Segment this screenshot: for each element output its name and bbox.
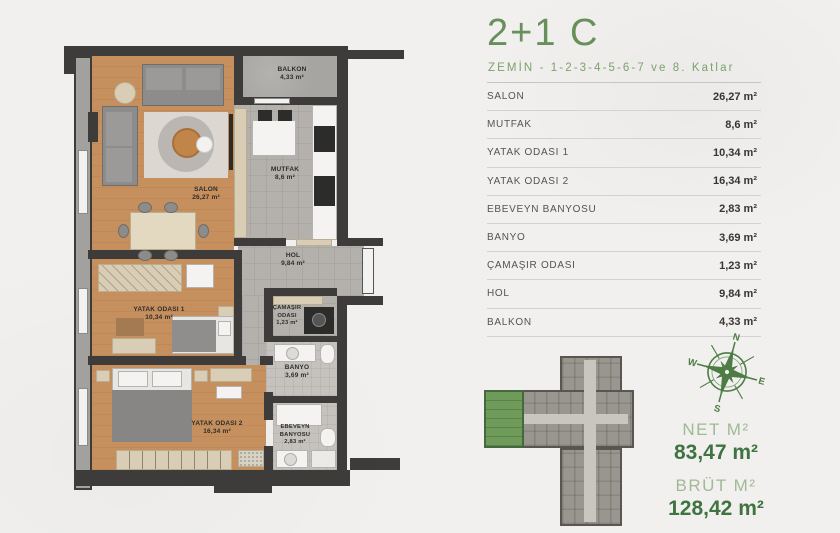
washing-machine-door xyxy=(312,313,326,327)
wall-right-upper xyxy=(337,48,348,246)
key-plan-corridor-v xyxy=(584,360,596,522)
window-yatak2 xyxy=(78,388,88,446)
compass-west-label: W xyxy=(686,357,698,370)
banyo-sink xyxy=(286,347,299,360)
label-mutfak: MUTFAK8,6 m² xyxy=(258,166,312,183)
wardrobe-yatak1 xyxy=(98,264,182,292)
wall-right-lower xyxy=(337,305,347,470)
wall-bottom xyxy=(74,470,350,486)
wall-kitchen-bottom xyxy=(234,238,286,246)
label-yatak2: YATAK ODASI 216,34 m² xyxy=(182,420,252,437)
sofa-main-cushion xyxy=(146,68,182,90)
sofa-left-cushion xyxy=(106,148,132,182)
ebeveyn-toilet xyxy=(320,428,336,447)
dining-chair xyxy=(198,224,209,238)
doormat-yatak2 xyxy=(238,450,264,467)
double-bed-pillow xyxy=(118,371,148,387)
area-table: SALON26,27 m² MUTFAK8,6 m² YATAK ODASI 1… xyxy=(487,82,761,337)
compass-icon: N E S W xyxy=(681,326,773,418)
stove xyxy=(314,126,335,152)
kitchen-counter-left xyxy=(234,108,247,238)
label-salon: SALON26,27 m² xyxy=(176,186,236,203)
table-row: YATAK ODASI 216,34 m² xyxy=(487,168,761,196)
dining-table xyxy=(130,212,196,250)
wall-left-stub xyxy=(88,112,98,142)
building-key-plan xyxy=(478,352,638,528)
ebeveyn-tub xyxy=(276,404,322,426)
wall-balkon-left xyxy=(234,48,243,105)
kitchen-doormat xyxy=(296,239,332,246)
side-table xyxy=(114,82,136,104)
kitchen-island xyxy=(252,120,296,156)
table-row: EBEVEYN BANYOSU2,83 m² xyxy=(487,196,761,224)
wall-camasir-top xyxy=(264,288,337,296)
wall-yatak2-door-jamb xyxy=(260,356,273,365)
wall-bottom-step xyxy=(214,486,272,493)
table-row: MUTFAK8,6 m² xyxy=(487,111,761,139)
label-hol: HOL9,84 m² xyxy=(270,252,316,269)
nightstand-yatak2 xyxy=(194,370,208,382)
wardrobe-yatak2 xyxy=(116,450,232,470)
table-row: YATAK ODASI 110,34 m² xyxy=(487,139,761,167)
table-row: HOL9,84 m² xyxy=(487,280,761,308)
nightstand-yatak2 xyxy=(96,370,110,382)
ebeveyn-shower xyxy=(311,450,336,468)
wall-entrance-top xyxy=(337,238,383,246)
dining-chair xyxy=(138,202,152,213)
brut-label: BRÜT M² xyxy=(632,476,800,496)
floor-plan: SALON26,27 m² MUTFAK8,6 m² BALKON4,33 m²… xyxy=(0,0,470,533)
banyo-toilet xyxy=(320,344,335,364)
brochure-page: SALON26,27 m² MUTFAK8,6 m² BALKON4,33 m²… xyxy=(0,0,840,533)
door-entrance xyxy=(362,248,374,294)
table-row: SALON26,27 m² xyxy=(487,83,761,111)
ebeveyn-sink xyxy=(284,453,297,466)
dresser-yatak2 xyxy=(210,368,252,382)
window-salon xyxy=(78,150,88,214)
desk-yatak2 xyxy=(216,386,242,399)
kitchen-stool xyxy=(278,110,292,121)
tv-unit xyxy=(229,114,233,170)
brut-value: 128,42 m² xyxy=(632,497,800,521)
side-tray xyxy=(196,136,213,153)
key-plan-highlighted-unit xyxy=(484,390,524,448)
single-bed-pillow xyxy=(218,321,231,336)
kitchen-stool xyxy=(258,110,272,121)
sofa-main-cushion xyxy=(186,68,220,90)
wall-top xyxy=(84,46,348,56)
wall-entrance-bottom xyxy=(337,296,383,305)
label-camasir: ÇAMAŞIR ODASI1,23 m² xyxy=(270,305,304,328)
net-value: 83,47 m² xyxy=(632,441,800,465)
double-bed-blanket xyxy=(112,390,192,442)
dining-chair xyxy=(164,202,178,213)
oven xyxy=(314,176,335,206)
net-label: NET M² xyxy=(632,420,800,440)
compass-north-label: N xyxy=(731,332,741,344)
dining-chair xyxy=(138,250,152,261)
window-yatak1 xyxy=(78,288,88,334)
compass-south-label: S xyxy=(713,403,722,415)
wall-salon-yatak1 xyxy=(88,250,238,259)
wall-mid-vert-c xyxy=(264,446,273,470)
dining-chair xyxy=(118,224,129,238)
label-banyo: BANYO3,69 m² xyxy=(275,364,319,381)
wall-bottom-right-stub xyxy=(350,458,400,470)
wall-yatak1-right xyxy=(234,250,242,356)
page-title: 2+1 C xyxy=(487,12,599,55)
label-yatak1: YATAK ODASI 110,34 m² xyxy=(124,306,194,323)
label-ebeveyn: EBEVEYN BANYOSU2,83 m² xyxy=(274,424,316,447)
table-row: ÇAMAŞIR ODASI1,23 m² xyxy=(487,252,761,280)
dresser-yatak1 xyxy=(186,264,214,288)
wall-camasir-banyo xyxy=(266,336,337,342)
single-bed-blanket xyxy=(172,320,216,352)
page-subtitle: ZEMİN - 1-2-3-4-5-6-7 ve 8. Katlar xyxy=(488,62,735,74)
wall-top-right-stub xyxy=(348,50,404,59)
table-row: BANYO3,69 m² xyxy=(487,224,761,252)
compass-east-label: E xyxy=(757,376,766,388)
desk-yatak1 xyxy=(112,338,156,354)
wall-yatak1-yatak2 xyxy=(88,356,246,365)
label-balkon: BALKON4,33 m² xyxy=(264,66,320,83)
double-bed-pillow xyxy=(152,371,182,387)
laundry-shelf xyxy=(273,296,323,305)
door-balkon xyxy=(254,98,290,104)
area-summary: NET M² 83,47 m² BRÜT M² 128,42 m² xyxy=(632,420,800,521)
dining-chair xyxy=(164,250,178,261)
wall-banyo-ebeveyn xyxy=(266,396,337,403)
sofa-left-cushion xyxy=(106,112,132,146)
